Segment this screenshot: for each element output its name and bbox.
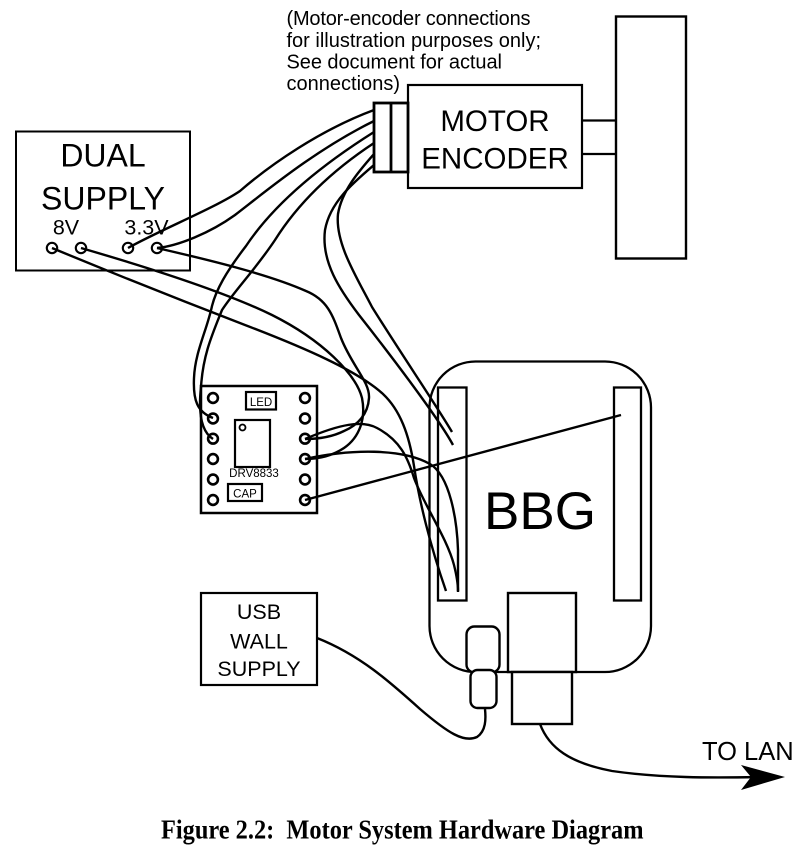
svg-text:DRV8833: DRV8833 (229, 468, 279, 480)
svg-text:for illustration purposes only: for illustration purposes only; (287, 30, 542, 52)
svg-text:DUAL: DUAL (60, 138, 145, 174)
svg-text:Figure 2.2: Motor System Hard: Figure 2.2: Motor System Hardware Diagra… (161, 815, 644, 845)
svg-text:8V: 8V (53, 216, 80, 240)
svg-text:(Motor-encoder connections: (Motor-encoder connections (287, 8, 531, 30)
svg-text:SUPPLY: SUPPLY (41, 181, 165, 217)
svg-text:ENCODER: ENCODER (421, 143, 569, 176)
svg-text:3.3V: 3.3V (124, 216, 169, 240)
svg-text:LED: LED (250, 397, 272, 409)
svg-text:TO LAN: TO LAN (702, 738, 794, 766)
svg-text:MOTOR: MOTOR (440, 105, 549, 138)
svg-text:WALL: WALL (230, 630, 288, 654)
svg-text:CAP: CAP (233, 489, 257, 501)
svg-text:SUPPLY: SUPPLY (217, 657, 300, 681)
svg-text:connections): connections) (287, 73, 401, 95)
svg-text:See document for actual: See document for actual (287, 52, 503, 74)
svg-text:USB: USB (237, 600, 281, 624)
svg-text:BBG: BBG (484, 482, 596, 541)
